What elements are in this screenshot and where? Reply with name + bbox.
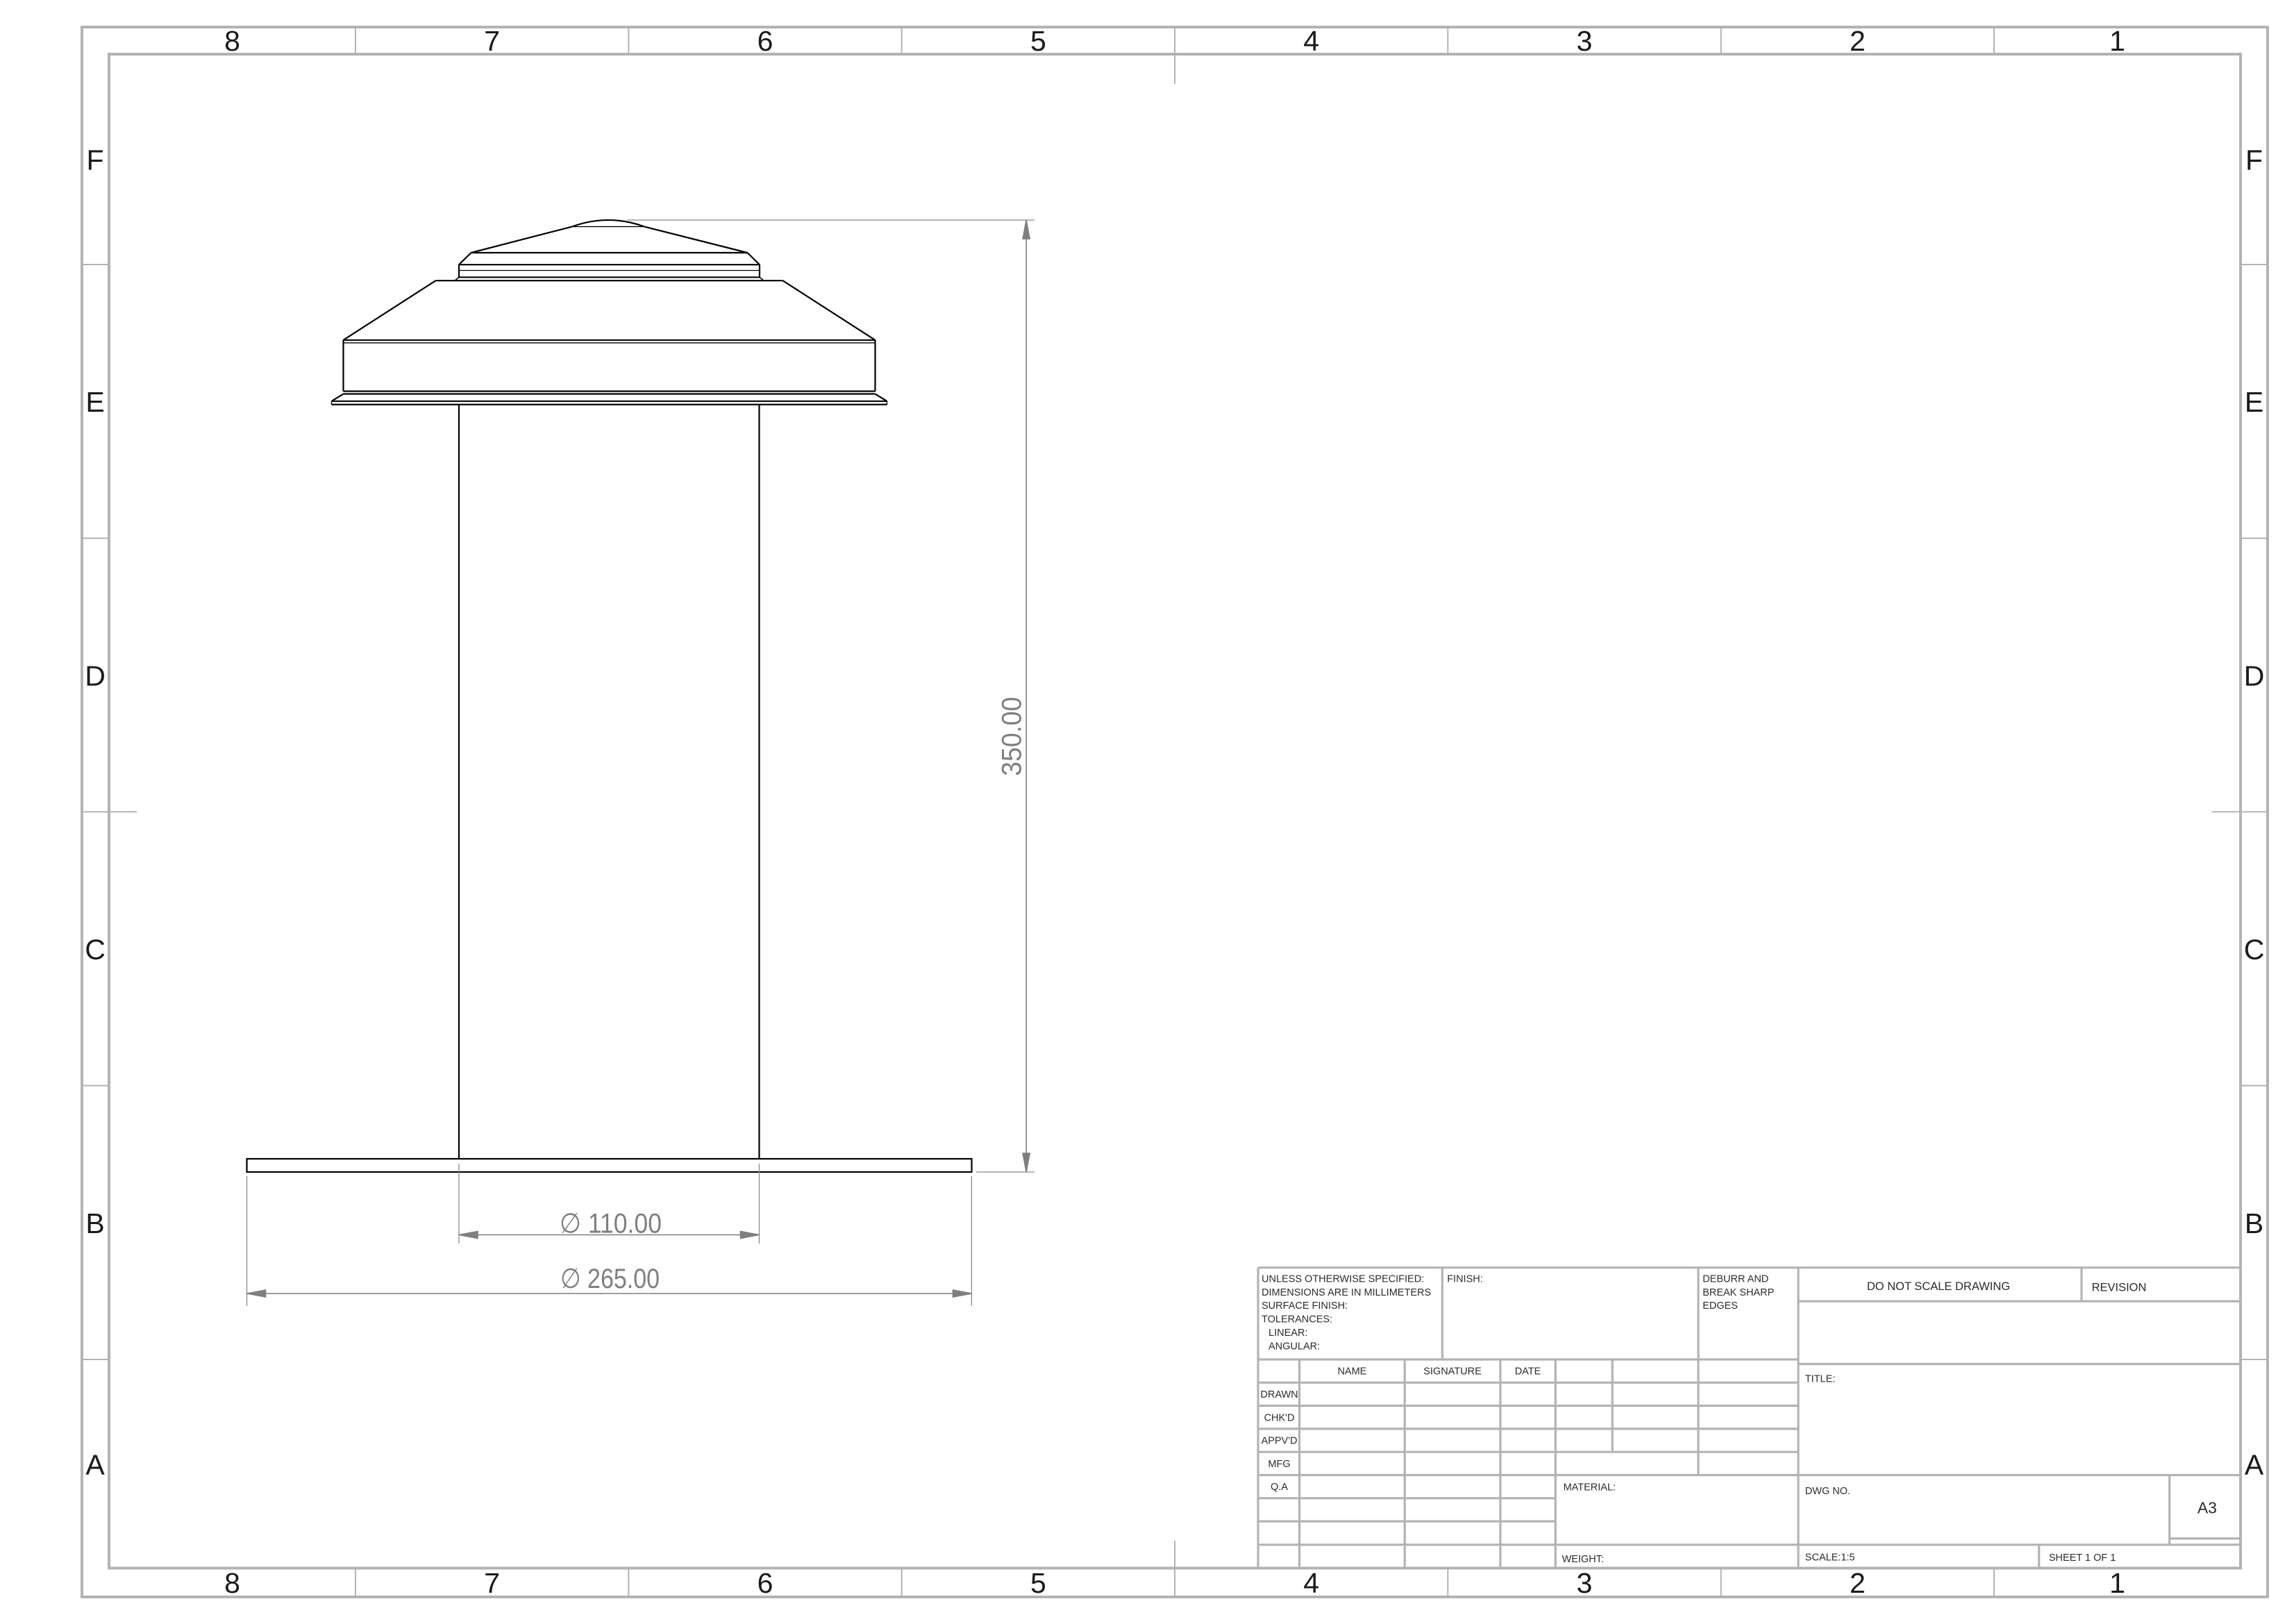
svg-text:∅ 265.00: ∅ 265.00 bbox=[560, 1264, 660, 1294]
svg-text:CHK'D: CHK'D bbox=[1264, 1412, 1295, 1423]
svg-text:∅ 110.00: ∅ 110.00 bbox=[560, 1209, 662, 1239]
svg-text:2: 2 bbox=[1850, 25, 1866, 57]
svg-text:EDGES: EDGES bbox=[1702, 1300, 1738, 1312]
svg-text:C: C bbox=[85, 934, 106, 966]
svg-text:REVISION: REVISION bbox=[2092, 1282, 2147, 1294]
svg-text:7: 7 bbox=[484, 1567, 500, 1599]
svg-text:F: F bbox=[86, 144, 103, 176]
svg-text:350.00: 350.00 bbox=[997, 697, 1028, 776]
svg-text:TITLE:: TITLE: bbox=[1805, 1373, 1836, 1384]
svg-text:TOLERANCES:: TOLERANCES: bbox=[1262, 1314, 1332, 1325]
svg-text:SHEET 1 OF 1: SHEET 1 OF 1 bbox=[2049, 1552, 2116, 1564]
svg-text:E: E bbox=[2245, 386, 2263, 418]
svg-text:DWG NO.: DWG NO. bbox=[1805, 1486, 1850, 1497]
svg-text:A: A bbox=[2245, 1449, 2264, 1481]
svg-text:3: 3 bbox=[1577, 25, 1593, 57]
svg-text:B: B bbox=[2245, 1207, 2263, 1239]
svg-text:DEBURR AND: DEBURR AND bbox=[1702, 1273, 1768, 1284]
svg-text:6: 6 bbox=[757, 1567, 773, 1599]
svg-text:Q.A: Q.A bbox=[1271, 1482, 1288, 1493]
svg-text:1: 1 bbox=[2109, 25, 2125, 57]
svg-text:ANGULAR:: ANGULAR: bbox=[1269, 1341, 1320, 1352]
svg-text:DO NOT SCALE DRAWING: DO NOT SCALE DRAWING bbox=[1867, 1280, 2010, 1293]
svg-text:APPV'D: APPV'D bbox=[1262, 1436, 1298, 1447]
svg-text:1: 1 bbox=[2109, 1567, 2125, 1599]
svg-text:E: E bbox=[85, 386, 104, 418]
svg-text:F: F bbox=[2245, 144, 2263, 176]
svg-text:6: 6 bbox=[757, 25, 773, 57]
svg-text:C: C bbox=[2244, 934, 2265, 966]
svg-text:3: 3 bbox=[1577, 1567, 1593, 1599]
svg-text:BREAK SHARP: BREAK SHARP bbox=[1702, 1287, 1774, 1298]
svg-text:SIGNATURE: SIGNATURE bbox=[1423, 1366, 1482, 1378]
svg-text:SURFACE FINISH:: SURFACE FINISH: bbox=[1262, 1300, 1348, 1312]
svg-text:8: 8 bbox=[224, 1567, 240, 1599]
svg-text:UNLESS OTHERWISE SPECIFIED:: UNLESS OTHERWISE SPECIFIED: bbox=[1262, 1273, 1424, 1284]
svg-text:4: 4 bbox=[1303, 25, 1319, 57]
svg-text:DIMENSIONS ARE IN MILLIMETERS: DIMENSIONS ARE IN MILLIMETERS bbox=[1262, 1287, 1431, 1298]
svg-text:SCALE:1:5: SCALE:1:5 bbox=[1805, 1552, 1855, 1564]
svg-text:MATERIAL:: MATERIAL: bbox=[1564, 1482, 1616, 1493]
svg-text:A: A bbox=[85, 1449, 105, 1481]
svg-text:B: B bbox=[85, 1207, 104, 1239]
svg-text:MFG: MFG bbox=[1268, 1459, 1290, 1470]
svg-text:FINISH:: FINISH: bbox=[1447, 1273, 1483, 1284]
svg-text:2: 2 bbox=[1850, 1567, 1866, 1599]
svg-text:DATE: DATE bbox=[1515, 1366, 1541, 1378]
svg-text:D: D bbox=[2244, 660, 2265, 692]
svg-text:WEIGHT:: WEIGHT: bbox=[1562, 1554, 1604, 1565]
svg-text:LINEAR:: LINEAR: bbox=[1269, 1328, 1307, 1339]
svg-text:5: 5 bbox=[1030, 1567, 1046, 1599]
svg-text:7: 7 bbox=[484, 25, 500, 57]
svg-text:5: 5 bbox=[1030, 25, 1046, 57]
svg-text:A3: A3 bbox=[2197, 1499, 2217, 1517]
svg-text:NAME: NAME bbox=[1337, 1366, 1366, 1378]
svg-text:D: D bbox=[85, 660, 106, 692]
svg-text:8: 8 bbox=[224, 25, 240, 57]
svg-text:4: 4 bbox=[1303, 1567, 1319, 1599]
svg-text:DRAWN: DRAWN bbox=[1260, 1389, 1298, 1400]
